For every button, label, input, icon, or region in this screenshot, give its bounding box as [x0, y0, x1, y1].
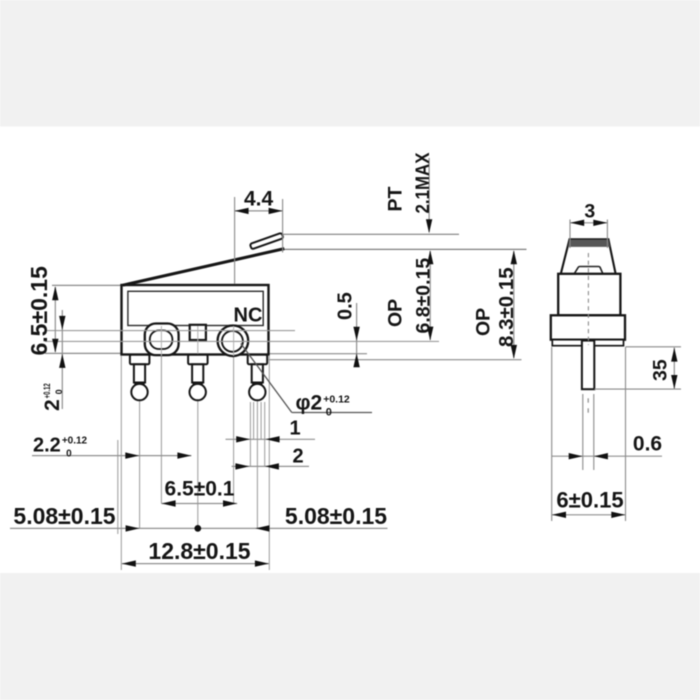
svg-text:OP: OP: [473, 308, 495, 336]
svg-text:35: 35: [650, 359, 672, 381]
svg-text:6.5±0.15: 6.5±0.15: [26, 266, 52, 356]
svg-text:PT: PT: [385, 186, 407, 211]
svg-text:5.08±0.15: 5.08±0.15: [285, 503, 387, 529]
svg-text:8.3±0.15: 8.3±0.15: [495, 267, 518, 347]
svg-text:1: 1: [289, 418, 300, 440]
svg-text:OP: OP: [385, 299, 407, 327]
svg-text:2: 2: [292, 446, 303, 468]
svg-text:NC: NC: [234, 305, 263, 327]
svg-text:6.8±0.15: 6.8±0.15: [413, 258, 435, 334]
svg-text:6.5±0.1: 6.5±0.1: [165, 478, 235, 501]
svg-text:3: 3: [584, 201, 595, 223]
svg-text:0.5: 0.5: [335, 292, 357, 320]
svg-text:12.8±0.15: 12.8±0.15: [148, 538, 250, 564]
svg-text:6±0.15: 6±0.15: [556, 488, 623, 513]
svg-text:4.4: 4.4: [244, 187, 274, 210]
svg-text:0.6: 0.6: [633, 433, 662, 456]
svg-text:2.1MAX: 2.1MAX: [413, 152, 434, 213]
svg-text:5.08±0.15: 5.08±0.15: [13, 503, 115, 529]
